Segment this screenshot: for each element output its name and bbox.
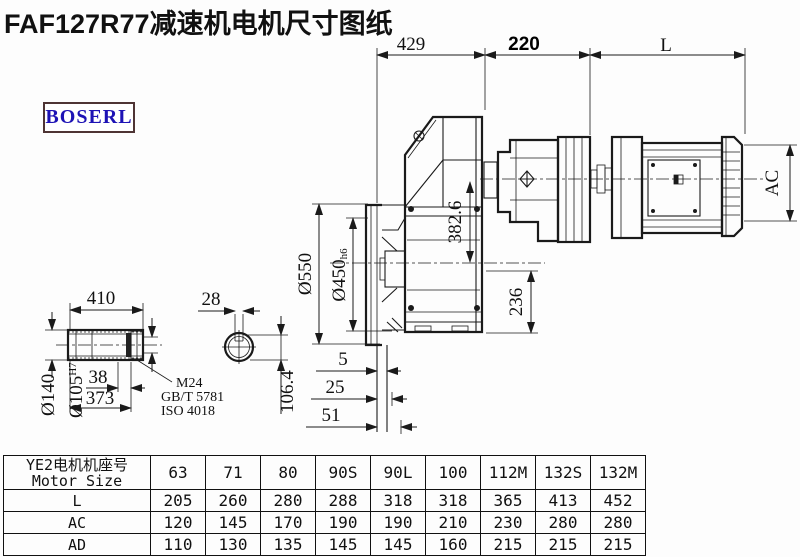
table-cell: 170 [261,512,316,534]
motor-size-column-header: 71 [206,456,261,490]
motor-size-column-header: 132M [591,456,646,490]
dim-236: 236 [486,271,538,333]
table-cell: 413 [536,490,591,512]
table-cell: 260 [206,490,261,512]
dim-25-label: 25 [326,377,345,398]
motor-size-column-header: 80 [261,456,316,490]
dim-550-label: Ø550 [295,253,316,295]
motor-size-table: YE2电机机座号Motor Size63718090S90L100112M132… [3,455,646,556]
bolt-spec-gbt: GB/T 5781 [161,390,224,405]
table-cell: 318 [371,490,426,512]
motor [612,137,742,238]
dim-382-6: 382.6 [445,182,470,262]
table-cell: 318 [426,490,481,512]
row-label: AC [4,512,151,534]
table-cell: 160 [426,534,481,556]
dim-382-6-label: 382.6 [445,201,466,244]
table-cell: 145 [206,512,261,534]
dim-AC: AC [762,170,783,196]
row-label: L [4,490,151,512]
drawing-page: { "title": "FAF127R77减速机电机尺寸图纸", "logo":… [0,0,800,557]
dim-450-label: Ø450h6 [329,248,350,302]
dim-L: L [660,35,672,56]
table-cell: 230 [481,512,536,534]
table-cell: 210 [426,512,481,534]
table-cell: 280 [261,490,316,512]
table-cell: 130 [206,534,261,556]
bolt-spec-m24: M24 [176,376,202,391]
dim-5-label: 5 [338,349,348,370]
shaft-detail: 410 Ø140 Ø105H7 38 373 M24 GB/T 5781 ISO… [38,288,224,419]
table-cell: 120 [151,512,206,534]
table-cell: 190 [316,512,371,534]
dim-flange-diameters: Ø550 Ø450h6 [295,204,392,344]
motor-size-column-header: 132S [536,456,591,490]
dim-429: 429 [397,34,426,55]
table-row: AD110130135145145160215215215 [4,534,646,556]
table-corner-cell: YE2电机机座号Motor Size [4,456,151,490]
ac-dimension: AC [744,145,797,221]
motor-size-column-header: 90L [371,456,426,490]
table-cell: 190 [371,512,426,534]
table-cell: 215 [481,534,536,556]
bolt-spec-iso: ISO 4018 [161,404,215,419]
dim-140-label: Ø140 [38,374,59,416]
dim-373-label: 373 [86,388,115,409]
table-row: AC120145170190190210230280280 [4,512,646,534]
dim-28-label: 28 [202,289,221,310]
table-cell: 145 [316,534,371,556]
motor-size-column-header: 63 [151,456,206,490]
output-flange [366,205,405,432]
table-cell: 110 [151,534,206,556]
table-cell: 452 [591,490,646,512]
motor-size-column-header: 90S [316,456,371,490]
motor-size-column-header: 100 [426,456,481,490]
table-cell: 365 [481,490,536,512]
table-cell: 205 [151,490,206,512]
table-cell: 280 [536,512,591,534]
dim-38-label: 38 [89,367,108,388]
table-cell: 145 [371,534,426,556]
dim-51-label: 51 [322,405,341,426]
dim-236-label: 236 [506,288,527,317]
table-cell: 280 [591,512,646,534]
table-row: L205260280288318318365413452 [4,490,646,512]
row-label: AD [4,534,151,556]
motor-size-column-header: 112M [481,456,536,490]
dim-220: 220 [508,34,540,55]
table-header-row: YE2电机机座号Motor Size63718090S90L100112M132… [4,456,646,490]
motor-size-table-wrap: YE2电机机座号Motor Size63718090S90L100112M132… [3,455,646,556]
table-cell: 288 [316,490,371,512]
table-cell: 135 [261,534,316,556]
table-cell: 215 [536,534,591,556]
dim-106-label: 106.4 [277,370,298,413]
table-cell: 215 [591,534,646,556]
input-adapter [484,137,612,242]
dim-410-label: 410 [87,288,116,309]
dim-105-label: Ø105H7 [66,362,87,418]
dim-foot-offsets: 5 25 51 [306,349,417,434]
